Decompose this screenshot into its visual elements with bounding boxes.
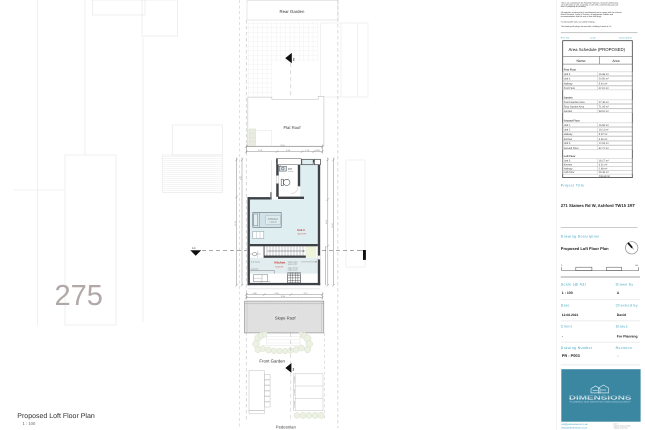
- svg-text:12.94 m²: 12.94 m²: [599, 142, 609, 145]
- svg-text:David: David: [617, 313, 626, 317]
- svg-text:Bath: Bath: [288, 167, 293, 170]
- svg-text:Drawing Description: Drawing Description: [561, 234, 600, 238]
- svg-text:Scale (@ A3): Scale (@ A3): [561, 282, 586, 286]
- svg-text:16.56 m²: 16.56 m²: [599, 124, 609, 127]
- svg-text:5m: 5m: [635, 264, 638, 267]
- svg-text:13.00: 13.00: [331, 223, 334, 228]
- svg-text:Proposed Loft Floor Plan: Proposed Loft Floor Plan: [561, 246, 609, 251]
- svg-text:71.05 m²: 71.05 m²: [599, 105, 609, 108]
- svg-text:Loft Floor: Loft Floor: [564, 155, 576, 158]
- svg-text:9.36 m²: 9.36 m²: [599, 138, 608, 141]
- svg-text:2: 2: [293, 367, 295, 371]
- svg-text:6.31 m²: 6.31 m²: [599, 163, 608, 166]
- svg-text:Rev No: Rev No: [561, 36, 570, 39]
- svg-text:Unit 3: Unit 3: [564, 73, 571, 76]
- svg-text:27.46 m²: 27.46 m²: [599, 101, 609, 104]
- svg-text:18.17 m²: 18.17 m²: [599, 160, 609, 163]
- svg-text:12.08.2021: 12.08.2021: [562, 313, 579, 317]
- svg-text:www.psdimensions.co.uk: www.psdimensions.co.uk: [561, 426, 588, 429]
- svg-text:Kitchen: Kitchen: [564, 163, 573, 166]
- svg-text:Front Garden Area: Front Garden Area: [564, 101, 585, 104]
- svg-text:12.78: 12.78: [234, 221, 237, 226]
- svg-text:Rear Garden Area: Rear Garden Area: [564, 105, 585, 108]
- svg-text:19.11 m²: 19.11 m²: [599, 129, 609, 132]
- svg-text:Project Title: Project Title: [561, 184, 585, 188]
- svg-text:Unit 3: Unit 3: [297, 229, 305, 232]
- svg-text:271 Staines Rd W, Ashford TW15: 271 Staines Rd W, Ashford TW15 1RT: [561, 203, 636, 208]
- svg-text:Proposed Loft Floor Plan: Proposed Loft Floor Plan: [17, 412, 95, 420]
- svg-text:Unit 1: Unit 1: [564, 124, 571, 127]
- svg-text:Name: Name: [576, 59, 585, 63]
- svg-text:Verandah: Verandah: [293, 389, 296, 396]
- svg-text:Hatfield, AL10 9AX: Hatfield, AL10 9AX: [614, 427, 629, 430]
- svg-text:Drawing Number: Drawing Number: [561, 346, 593, 350]
- svg-text:5.40 m²: 5.40 m²: [599, 82, 608, 85]
- svg-text:5.97 m²: 5.97 m²: [599, 133, 608, 136]
- svg-text:2.98 m²: 2.98 m²: [599, 167, 608, 170]
- svg-text:PR - P003: PR - P003: [562, 353, 581, 358]
- svg-text:Bed/Mattress: Bed/Mattress: [268, 218, 278, 221]
- svg-text:Hallway: Hallway: [564, 167, 574, 170]
- svg-text:For Planning: For Planning: [617, 334, 638, 338]
- svg-text:62.71 m²: 62.71 m²: [599, 147, 609, 150]
- svg-text:Description: Description: [619, 36, 633, 39]
- svg-text:Pedestrian: Pedestrian: [276, 425, 297, 430]
- svg-text:Unit 3: Unit 3: [564, 160, 571, 163]
- svg-text:Front Garden: Front Garden: [259, 359, 285, 364]
- svg-text:PLANNING AND ARCHITECTURE CONS: PLANNING AND ARCHITECTURE CONSULTANCY: [570, 401, 632, 404]
- svg-text:Checked by: Checked by: [616, 304, 638, 308]
- svg-text:Drawn by: Drawn by: [616, 282, 634, 286]
- svg-text:Unit 2: Unit 2: [564, 129, 571, 132]
- svg-text:recommendations that this may: recommendations that this may in that sh…: [561, 15, 602, 18]
- svg-text:Unit 3: Unit 3: [564, 142, 571, 145]
- svg-text:Kitchen: Kitchen: [564, 138, 573, 141]
- svg-text:2: 2: [293, 58, 295, 62]
- svg-text:Date: Date: [561, 304, 570, 308]
- svg-text:42.91 m²: 42.91 m²: [599, 87, 609, 90]
- svg-text:1 : 100: 1 : 100: [562, 291, 573, 295]
- svg-text:info@psdimensions.co.uk: info@psdimensions.co.uk: [561, 423, 588, 426]
- svg-text:0: 0: [561, 264, 563, 267]
- svg-text:Verandah: Verandah: [293, 401, 296, 408]
- svg-text:Area Schedule (PROPOSED): Area Schedule (PROPOSED): [568, 47, 625, 52]
- svg-text:Hallway: Hallway: [564, 133, 574, 136]
- svg-text:1 1: 1 1: [192, 247, 196, 250]
- svg-text:W.M. 60x60: W.M. 60x60: [251, 261, 260, 264]
- svg-text:25.46 m²: 25.46 m²: [599, 171, 609, 174]
- svg-text:work or preparing any drawing.: work or preparing any drawing.: [561, 5, 587, 8]
- svg-text:Garden: Garden: [564, 110, 573, 113]
- svg-text:A: A: [617, 291, 620, 295]
- svg-text:Status: Status: [616, 325, 628, 329]
- svg-text:20.50 m²: 20.50 m²: [599, 78, 609, 81]
- svg-text:3.95: 3.95: [240, 176, 243, 180]
- svg-text:fridge freezer: fridge freezer: [288, 268, 298, 271]
- svg-text:-: -: [617, 354, 619, 358]
- svg-text:First Floor: First Floor: [564, 87, 575, 90]
- svg-text:Area: Area: [612, 59, 619, 63]
- svg-text:Verandah: Verandah: [293, 376, 296, 383]
- svg-text:Date: Date: [591, 36, 597, 39]
- svg-text:For all possible work, use sta: For all possible work, use stated readin…: [561, 21, 596, 24]
- svg-text:Cupboard: Cupboard: [251, 268, 258, 271]
- svg-text:18.17 m²: 18.17 m²: [297, 233, 306, 236]
- svg-text:Kitchen: Kitchen: [274, 260, 285, 264]
- svg-text:4.04: 4.04: [325, 220, 328, 224]
- svg-text:Flat Roof: Flat Roof: [284, 125, 302, 130]
- svg-text:2.98 m²: 2.98 m²: [288, 170, 294, 173]
- svg-text:1 : 100: 1 : 100: [23, 421, 36, 426]
- svg-text:Loft Floor: Loft Floor: [564, 171, 575, 174]
- svg-text:6.31 m²: 6.31 m²: [276, 265, 284, 268]
- svg-text:Ground Floor: Ground Floor: [564, 119, 580, 122]
- svg-text:Revision: Revision: [616, 346, 633, 350]
- svg-text:16.68 m²: 16.68 m²: [599, 73, 609, 76]
- svg-text:This drawing will always be re: This drawing will always be read with a …: [561, 25, 612, 28]
- svg-text:Client: Client: [561, 325, 572, 329]
- svg-text:Hallway: Hallway: [564, 82, 574, 85]
- svg-text:Rear Garden: Rear Garden: [280, 9, 305, 14]
- svg-text:First Floor: First Floor: [564, 69, 576, 72]
- svg-text:236.68 m²: 236.68 m²: [599, 175, 610, 178]
- svg-text:275: 275: [55, 280, 103, 312]
- svg-text:Garden: Garden: [564, 96, 573, 99]
- svg-text:98.51 m²: 98.51 m²: [599, 110, 609, 113]
- svg-text:space under: space under: [288, 262, 298, 265]
- svg-text:Unit 4: Unit 4: [564, 78, 571, 81]
- svg-text:Ground Floor: Ground Floor: [564, 147, 579, 150]
- svg-text:-: -: [562, 334, 564, 338]
- svg-text:Slope Roof: Slope Roof: [275, 315, 297, 320]
